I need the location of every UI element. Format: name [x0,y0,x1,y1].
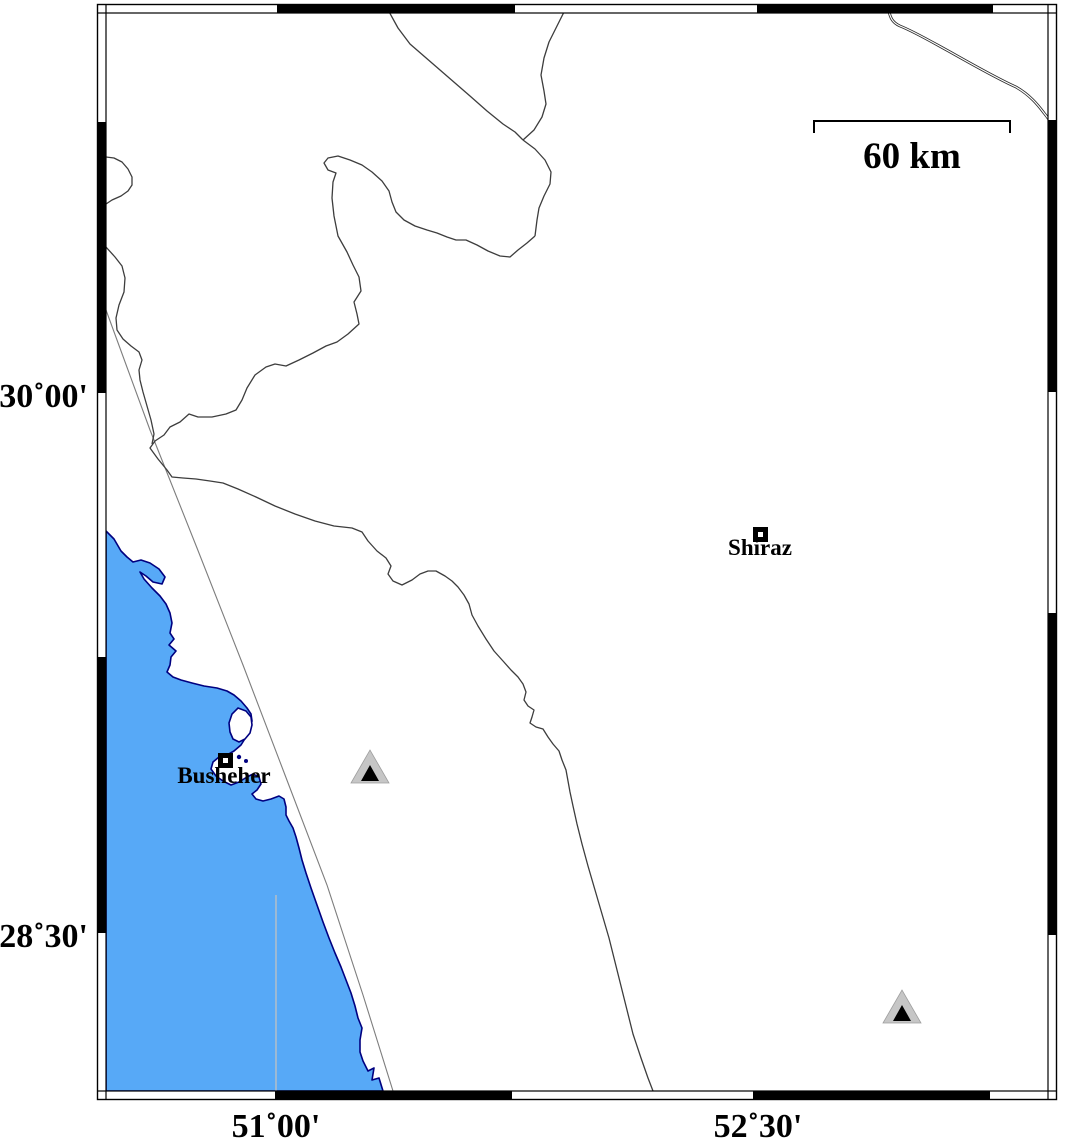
axis-label-28-30: 28˚30' [0,918,88,955]
island [229,708,252,742]
city-label: Shiraz [728,535,792,560]
city-label: Busheher [177,763,270,788]
frame-tick-segment [277,5,515,14]
map-image: 60 kmShirazBusheher30˚00'28˚30'51˚00'52˚… [0,0,1066,1141]
frame-tick-segment [753,1091,990,1100]
scale-bar [814,121,1010,133]
axis-label-52-30: 52˚30' [714,1108,803,1141]
boundary-frame-bump [106,157,132,204]
city-shiraz: Shiraz [728,530,792,561]
station-1 [351,750,389,783]
boundary-junction [523,140,551,236]
sea-persian-gulf [106,531,383,1091]
axis-label-51-00: 51˚00' [232,1108,321,1141]
river-core [888,8,1055,129]
frame-tick-segment [98,122,107,393]
boundary-frame-west [106,247,154,444]
islet [237,755,241,759]
boundary-north-b [523,10,565,140]
map-svg: 60 kmShirazBusheher30˚00'28˚30'51˚00'52˚… [0,0,1066,1141]
scale-bar-label: 60 km [863,136,961,177]
boundary-north-a [387,8,523,140]
frame-tick-segment [98,657,107,933]
frame-tick-segment [275,1091,512,1100]
river-casing [888,8,1055,129]
frame-tick-segment [1048,613,1057,935]
frame-tick-segment [757,5,993,14]
station-2 [883,990,921,1023]
frame-tick-segment [1048,120,1057,392]
axis-label-30-00: 30˚00' [0,378,88,415]
